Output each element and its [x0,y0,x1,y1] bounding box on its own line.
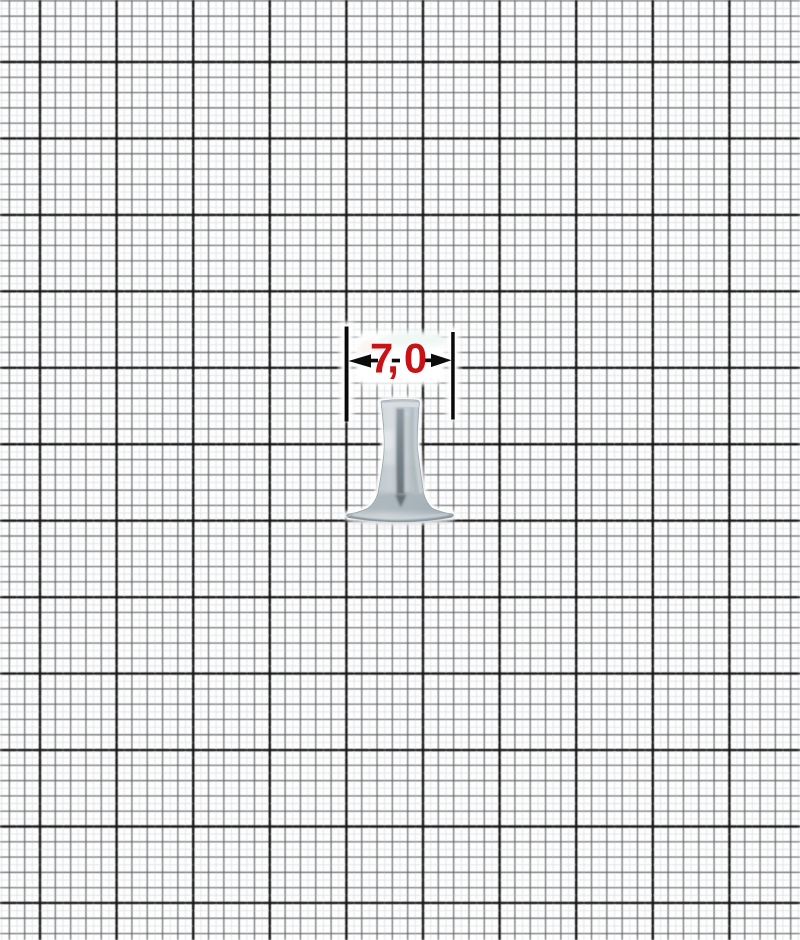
svg-text:0: 0 [404,334,427,381]
svg-text:,: , [387,334,399,381]
